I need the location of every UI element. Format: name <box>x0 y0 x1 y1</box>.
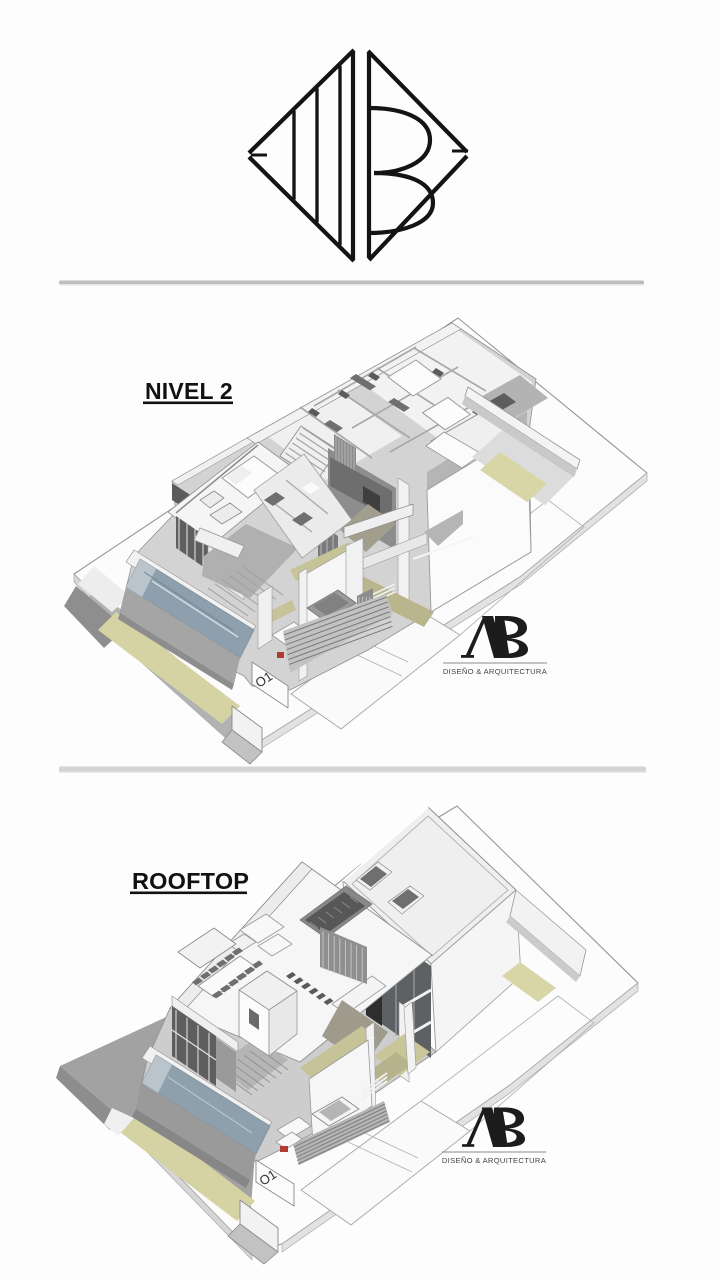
svg-text:NIVEL 2: NIVEL 2 <box>145 378 233 404</box>
svg-text:ROOFTOP: ROOFTOP <box>132 868 249 894</box>
svg-text:DISEÑO & ARQUITECTURA: DISEÑO & ARQUITECTURA <box>442 1156 547 1165</box>
svg-text:DISEÑO & ARQUITECTURA: DISEÑO & ARQUITECTURA <box>443 667 548 676</box>
